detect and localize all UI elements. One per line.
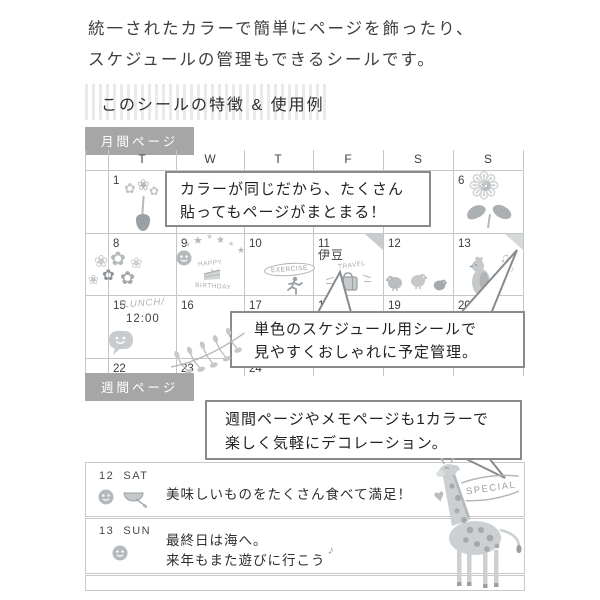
flower-vase-sticker: ✿ ❀ ✿ — [122, 180, 166, 232]
sat-day-name: SAT — [123, 470, 148, 482]
flower-icon: ✿ — [149, 184, 159, 198]
day11-note: 伊豆 — [318, 246, 344, 263]
cockatiel-icon — [464, 254, 498, 298]
sunflower-center-icon: ❁ — [480, 178, 492, 195]
day-number: 12 — [388, 238, 401, 250]
star-icon: ★ — [184, 240, 191, 249]
bird-icon — [409, 272, 427, 289]
sun-date-number: 13 — [99, 525, 114, 537]
day-number: 16 — [181, 300, 194, 312]
bird-icon — [386, 274, 404, 291]
flower-icon: ✿ — [124, 180, 136, 197]
runner-icon — [284, 276, 304, 296]
weekday-header: T — [132, 152, 152, 166]
sat-entry-text: 美味しいものをたくさん食べて満足！ — [166, 483, 412, 503]
sparkle-line — [363, 275, 371, 279]
grid-line — [86, 233, 524, 234]
speech-bubble-2: 単色のスケジュール用シールで 見やすくおしゃれに予定管理。 — [230, 311, 525, 368]
intro-text: 統一されたカラーで簡単にページを飾ったり、 スケジュールの管理もできるシールです… — [88, 14, 528, 75]
birthday-sticker: ★ ★ ★ ★ ★ ★ HAPPY BIRTHDAY — [176, 232, 248, 294]
speech-bubble-3: 週間ページやメモページも1カラーで 楽しく気軽にデコレーション。 — [205, 400, 522, 460]
smiley-icon — [112, 545, 128, 561]
stem — [141, 196, 144, 214]
bird-icon — [432, 278, 447, 292]
leaf — [490, 202, 513, 222]
sparkle-line — [364, 281, 371, 282]
lunch-time-text: 12:00 — [126, 313, 160, 325]
cake-icon — [202, 268, 222, 281]
intro-line-1: 統一されたカラーで簡単にページを飾ったり、 — [88, 14, 528, 45]
bubble3-line2: 楽しく気軽にデコレーション。 — [225, 432, 448, 453]
weekday-header: T — [268, 152, 288, 166]
smiley-icon — [98, 489, 114, 505]
weekday-header: S — [408, 152, 428, 166]
sun-entry-text-1: 最終日は海へ。 — [166, 529, 268, 549]
flower-icon: ✿ — [120, 268, 135, 289]
weekly-page-label: 週間ページ — [85, 373, 194, 401]
bird-music-sticker: ♫ ♪ — [462, 250, 520, 298]
flower-icon: ❀ — [137, 176, 150, 194]
product-description-image: 統一されたカラーで簡単にページを飾ったり、 スケジュールの管理もできるシールです… — [0, 0, 600, 600]
corner-triangle-day13 — [505, 234, 523, 250]
bubble2-line2: 見やすくおしゃれに予定管理。 — [254, 341, 478, 362]
speech-bubble-1: カラーが同じだから、たくさん 貼ってもページがまとまる！ — [165, 171, 431, 227]
smiley-icon — [176, 250, 192, 266]
sun-entry-text-2: 来年もまた遊びに行こう — [166, 549, 326, 569]
star-icon: ★ — [228, 240, 234, 248]
weekday-header: F — [338, 152, 358, 166]
star-icon: ★ — [216, 235, 225, 246]
exercise-sticker: EXERCISE — [264, 263, 322, 297]
suitcase-icon — [336, 271, 360, 293]
sparkle-line — [326, 283, 333, 284]
bowl-icon — [122, 487, 148, 509]
day-number: 13 — [458, 238, 471, 250]
intro-line-2: スケジュールの管理もできるシールです。 — [88, 45, 528, 76]
music-notes-icon: ♫ — [500, 250, 510, 265]
stem — [487, 214, 490, 228]
weekday-header: W — [200, 152, 220, 166]
bubble1-line1: カラーが同じだから、たくさん — [180, 178, 404, 199]
sat-date-number: 12 — [99, 470, 114, 482]
sun-date: 13 SUN — [99, 525, 151, 537]
vase — [136, 214, 150, 231]
lunch-sticker: \LUNCH/ 12:00 — [106, 298, 170, 358]
star-icon: ★ — [206, 232, 213, 241]
travel-sticker: TRAVEL — [326, 262, 376, 298]
star-icon: ★ — [237, 245, 245, 256]
flower-icon: ❀ — [88, 272, 99, 288]
bubble2-line1: 単色のスケジュール用シールで — [254, 318, 477, 339]
bubble1-line2: 貼ってもページがまとまる！ — [180, 201, 386, 222]
birthday-text: BIRTHDAY — [195, 282, 232, 292]
flower-icon: ✿ — [102, 266, 115, 284]
birds-sticker — [386, 272, 452, 296]
section-header-text: このシールの特徴 & 使用例 — [101, 91, 325, 115]
music-note-icon: ♪ — [510, 264, 515, 274]
corner-triangle-day11 — [365, 234, 383, 250]
section-header: このシールの特徴 & 使用例 — [85, 84, 330, 120]
travel-text: TRAVEL — [338, 260, 367, 271]
happy-text: HAPPY — [198, 259, 223, 268]
lunch-text: \LUNCH/ — [120, 296, 166, 310]
star-icon: ★ — [193, 234, 203, 247]
sun-day-name: SUN — [123, 525, 151, 537]
sat-date: 12 SAT — [99, 470, 148, 482]
music-note-icon: ♪ — [327, 543, 335, 558]
day-number: 10 — [249, 238, 262, 250]
day-number: 1 — [113, 175, 119, 187]
sparkle-line — [326, 277, 334, 281]
bubble3-line1: 週間ページやメモページも1カラーで — [225, 408, 489, 429]
sunflower-sticker: ❁ ❁ — [462, 170, 518, 228]
smiley-bubble-icon — [108, 330, 136, 356]
